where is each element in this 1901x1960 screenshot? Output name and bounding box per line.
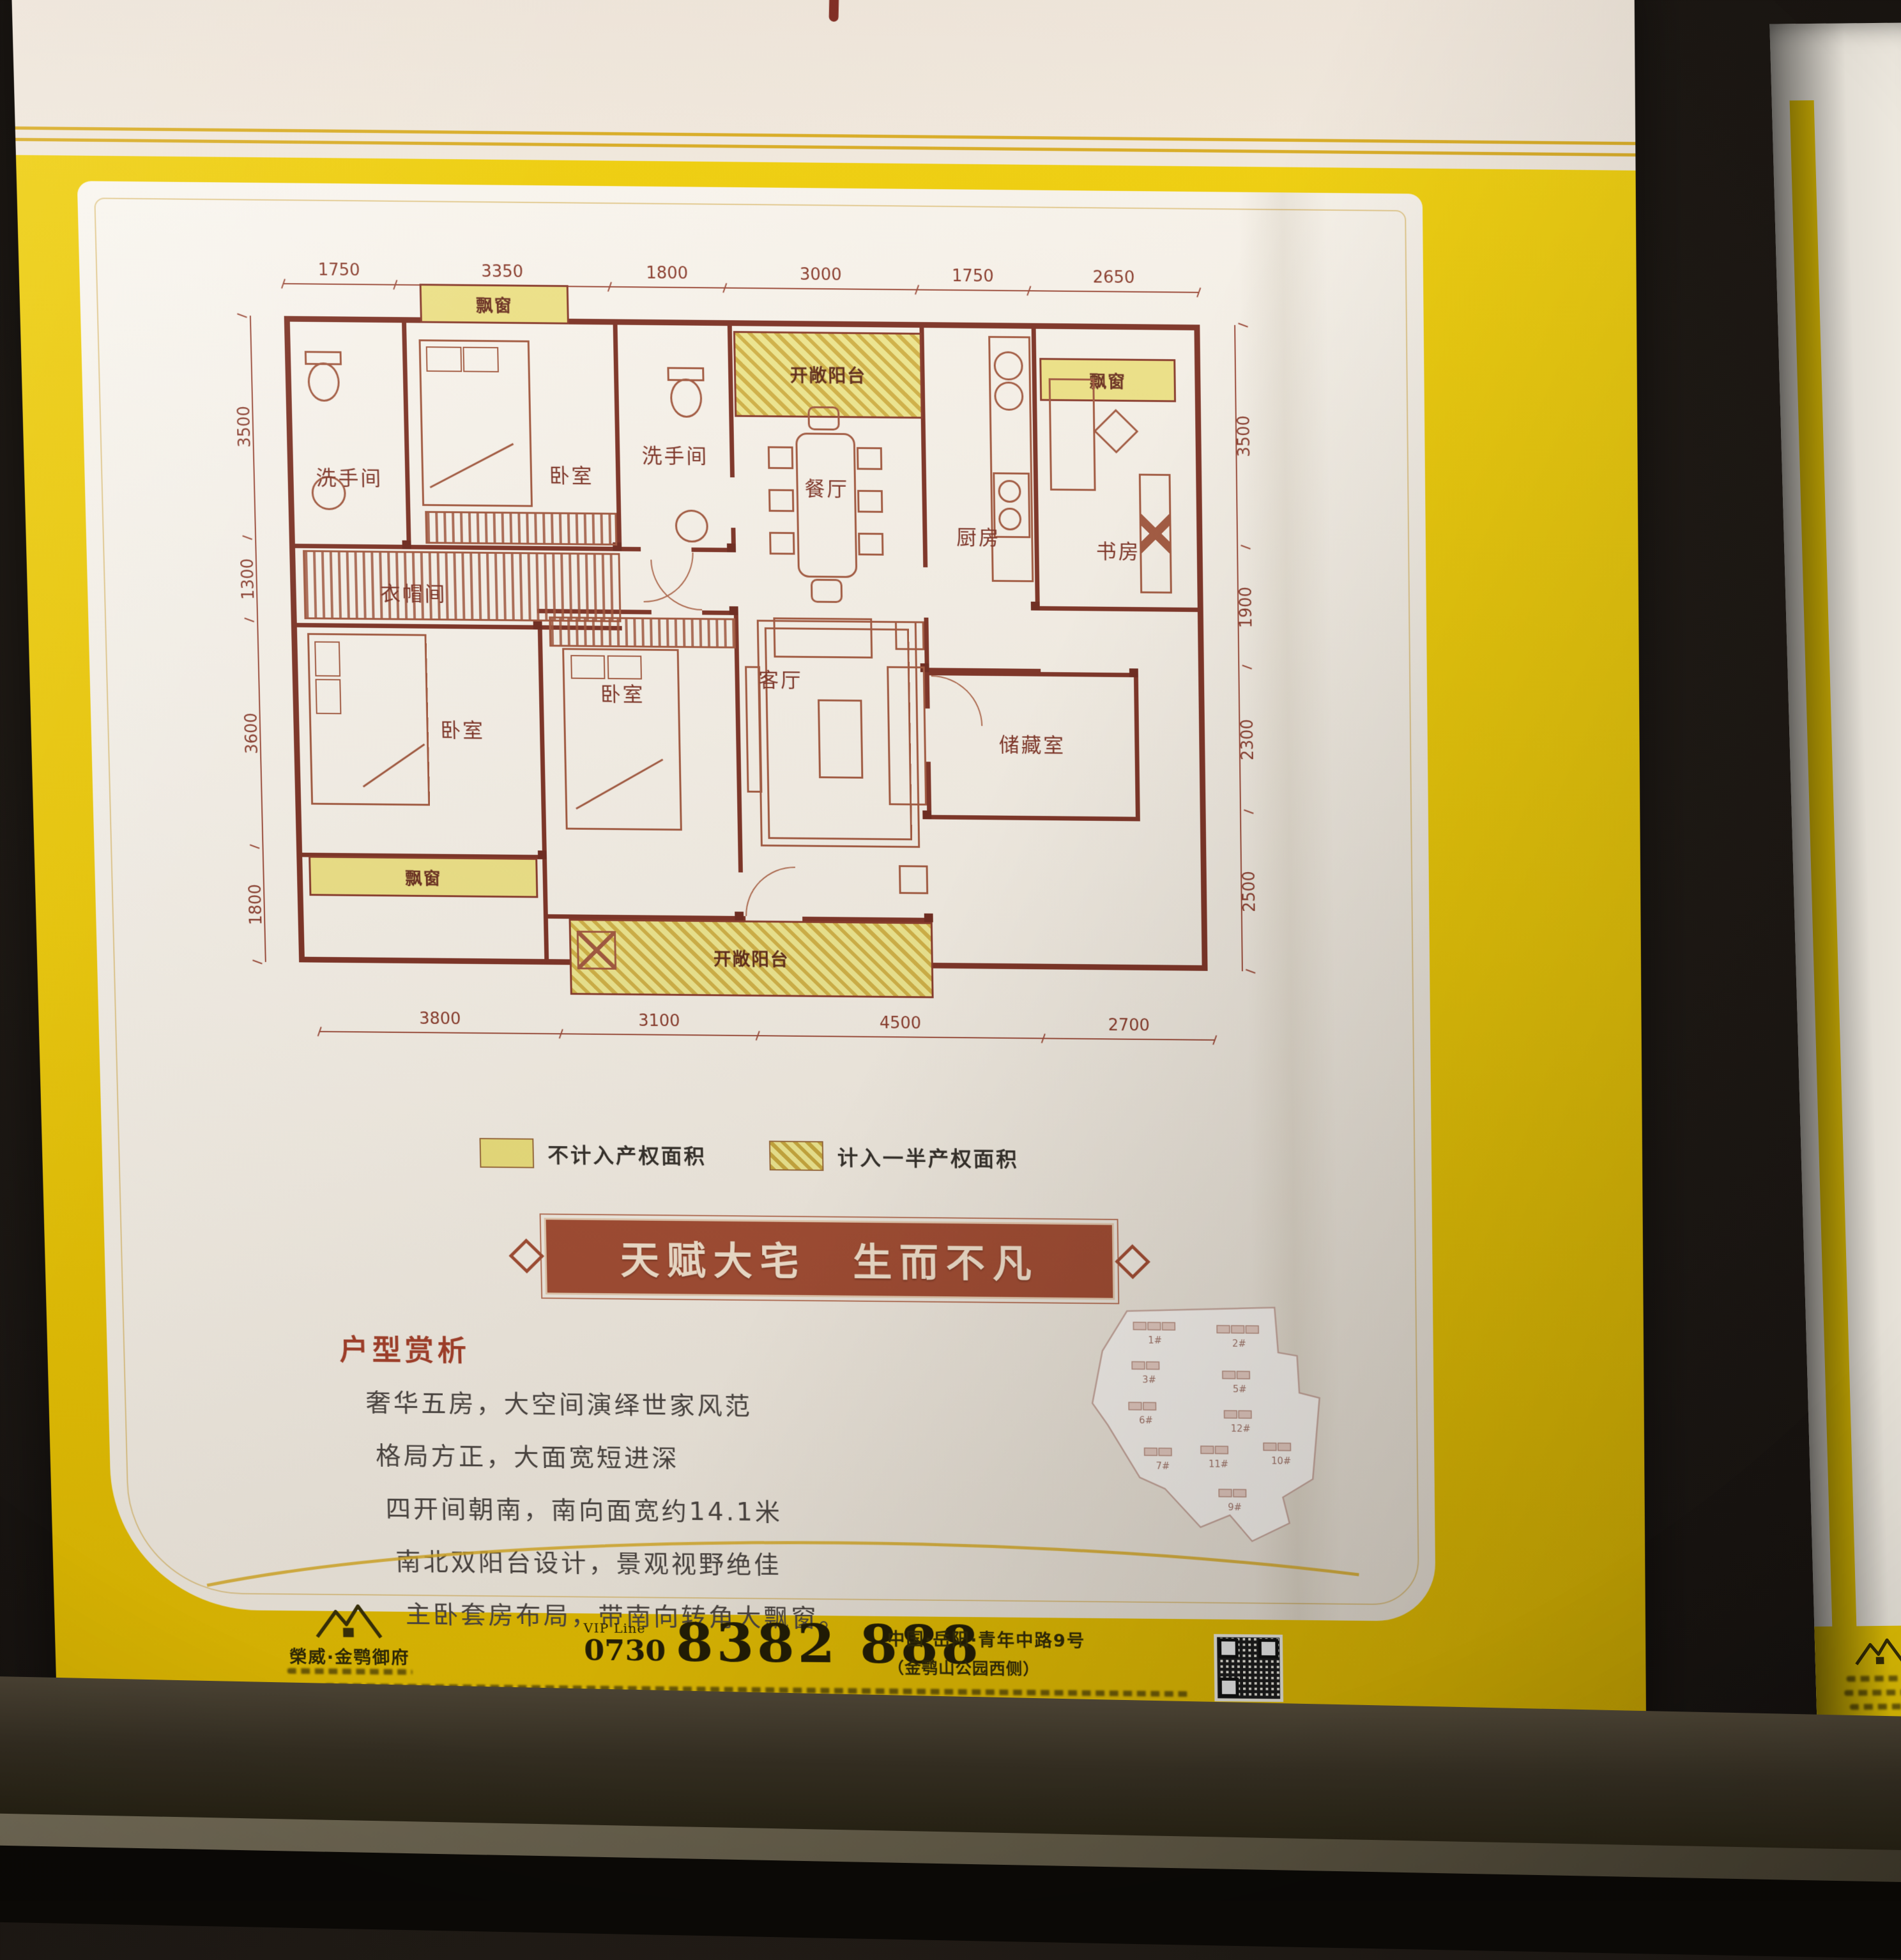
speaker: [899, 865, 928, 894]
mountain-logo-icon: [311, 1602, 387, 1641]
wall: [402, 323, 411, 545]
column: [1031, 602, 1040, 611]
wall: [925, 671, 930, 708]
dim-value: 4500: [758, 1013, 1044, 1034]
legend-not-counted: 不计入产权面积: [479, 1138, 706, 1170]
room-label-bedroom-left: 卧室: [440, 714, 485, 744]
column: [402, 540, 411, 549]
open-balcony-bottom: 开敞阳台: [569, 919, 934, 998]
dim-value: 3600: [242, 712, 262, 754]
building-label: 10#: [1271, 1455, 1291, 1467]
developer-logo-block: 榮威·金鹗御府: [261, 1602, 438, 1669]
analysis-heading: 户型赏析: [339, 1327, 471, 1369]
wall: [734, 611, 743, 873]
analysis-line: 格局方正，大面宽短进深: [375, 1436, 679, 1474]
dim-value: 2650: [1028, 268, 1198, 288]
adjacent-poster-fragment: [1769, 22, 1901, 1751]
dim-value: 1800: [609, 263, 725, 283]
chair: [858, 533, 883, 556]
column: [727, 544, 736, 553]
open-balcony-top: 开敞阳台: [733, 331, 923, 418]
bay-window-top-left: 飘窗: [420, 284, 569, 325]
area-code: 0730: [584, 1635, 666, 1666]
poster-white-panel: 1750 3350 1800 3000 1750 2650 3500 1300 …: [77, 181, 1436, 1621]
wall: [538, 625, 549, 960]
building-label: 11#: [1209, 1459, 1228, 1470]
house-outline: 飘窗 开敞阳台 飘窗 飘窗 开敞阳台: [284, 316, 1208, 971]
dining-table: [795, 433, 857, 578]
building-label: 5#: [1233, 1384, 1247, 1395]
dimension-chain-bottom: 3800 3100 4500 2700: [319, 1007, 1214, 1041]
chair: [857, 447, 882, 470]
legend-half-counted: 计入一半产权面积: [769, 1141, 1019, 1173]
room-label-dining: 餐厅: [804, 473, 849, 502]
bed: [562, 648, 682, 831]
dimension-chain-right: 3500 1900 2300 2500: [1230, 325, 1263, 972]
building-label: 7#: [1156, 1460, 1170, 1472]
dimension-chain-left: 3500 1300 3600 1800: [229, 316, 270, 962]
wall: [927, 815, 1140, 822]
desk: [1049, 378, 1096, 491]
bay-window-label: 飘窗: [1089, 367, 1126, 392]
room-label-bedroom-mid: 卧室: [600, 678, 645, 708]
qr-code: [1214, 1634, 1283, 1702]
washing-machine: [577, 931, 616, 970]
wall: [925, 671, 1138, 677]
wall: [1035, 606, 1198, 612]
dim-value: 2500: [1240, 871, 1259, 912]
poster-top-band: [10, 0, 1636, 171]
analysis-line: 奢华五房，大空间演绎世家风范: [365, 1383, 752, 1423]
wardrobe: [425, 511, 617, 546]
legend-label: 不计入产权面积: [547, 1138, 706, 1170]
column: [729, 606, 738, 615]
chair: [768, 446, 793, 469]
dim-value: 2300: [1238, 719, 1257, 760]
dim-value: 1900: [1237, 586, 1256, 628]
legend-swatch-hatched: [769, 1141, 824, 1171]
bookshelf: [1139, 473, 1172, 593]
room-label-study: 书房: [1096, 535, 1141, 565]
slogan-text: 天赋大宅 生而不凡: [620, 1229, 1039, 1289]
building-label: 9#: [1228, 1502, 1242, 1513]
site-plan-minimap: 1# 2# 3# 5# 6# 12# 7# 11# 10#: [1067, 1292, 1371, 1565]
column: [538, 850, 547, 859]
building-label: 3#: [1142, 1374, 1156, 1386]
burner: [998, 480, 1021, 503]
room-label-bath1: 洗手间: [316, 462, 383, 491]
bed: [307, 633, 430, 806]
calligraphy-stroke: [829, 0, 841, 22]
dim-value: 3350: [395, 261, 609, 282]
chair: [811, 579, 843, 603]
building-label: 2#: [1232, 1338, 1246, 1349]
dim-value: 1800: [246, 884, 266, 925]
wall: [1134, 673, 1140, 821]
brand-name: 榮威·金鹗御府: [262, 1643, 438, 1669]
door-swing: [931, 675, 982, 726]
open-balcony-label: 开敞阳台: [790, 362, 866, 388]
chair: [857, 490, 883, 513]
chair: [1094, 409, 1138, 454]
dim-value: 3500: [234, 406, 254, 448]
building-label: 12#: [1231, 1423, 1251, 1434]
column: [924, 914, 933, 923]
address-block: 中国·岳阳·青年中路9号 （金鹗山公园西侧）: [887, 1626, 1086, 1680]
chair: [769, 532, 795, 555]
building-label: 1#: [1148, 1335, 1162, 1346]
bay-window-label: 飘窗: [405, 864, 442, 889]
toilet: [670, 378, 703, 418]
dim-value: 1750: [917, 266, 1029, 286]
room-label-master-bedroom: 卧室: [549, 460, 593, 489]
column: [533, 621, 542, 630]
open-balcony-label: 开敞阳台: [714, 946, 790, 971]
analysis-line: 四开间朝南，南向面宽约14.1米: [385, 1489, 783, 1528]
kitchen-sink: [994, 381, 1023, 411]
legend-swatch-solid: [479, 1138, 534, 1168]
column: [735, 912, 744, 921]
door-swing: [745, 866, 796, 917]
building-label: 6#: [1139, 1414, 1153, 1426]
poster2-shadow: [1769, 22, 1901, 1751]
real-estate-poster: 1750 3350 1800 3000 1750 2650 3500 1300 …: [10, 0, 1646, 1731]
bed: [419, 339, 533, 507]
dim-value: 2700: [1043, 1015, 1215, 1036]
bay-window-label: 飘窗: [476, 291, 514, 316]
room-label-storage: 储藏室: [999, 729, 1066, 758]
door-swing: [650, 560, 702, 610]
wardrobe: [549, 616, 735, 648]
chair: [768, 489, 794, 512]
toilet: [307, 362, 340, 402]
address-line2: （金鹗山公园西侧）: [887, 1655, 1086, 1680]
room-label-closet: 衣帽间: [380, 578, 447, 607]
analysis-line: 南北双阳台设计，景观视野绝佳: [395, 1542, 782, 1581]
dim-value: 3000: [724, 264, 917, 286]
speaker: [895, 621, 924, 650]
fine-print: [287, 1668, 413, 1674]
room-label-bath2: 洗手间: [641, 440, 708, 470]
floorplan: 1750 3350 1800 3000 1750 2650 3500 1300 …: [213, 258, 1279, 1108]
room-label-kitchen: 厨房: [956, 522, 1001, 551]
column: [1129, 668, 1138, 677]
sofa: [887, 666, 927, 806]
sofa: [773, 617, 873, 658]
burner: [998, 508, 1021, 531]
dim-value: 3100: [561, 1011, 758, 1031]
address-line1: 中国·岳阳·青年中路9号: [887, 1626, 1086, 1652]
dim-value: 3500: [1235, 415, 1255, 457]
dim-value: 3800: [319, 1009, 561, 1030]
slogan-banner: 天赋大宅 生而不凡: [544, 1218, 1115, 1299]
dim-value: 1750: [283, 260, 395, 280]
chair: [807, 406, 839, 431]
bay-window-bottom-left: 飘窗: [309, 856, 538, 898]
column: [922, 811, 931, 820]
coffee-table: [818, 700, 863, 779]
room-label-living: 客厅: [758, 664, 803, 694]
legend-label: 计入一半产权面积: [837, 1142, 1019, 1173]
wall: [924, 618, 929, 668]
kitchen-sink: [993, 351, 1023, 381]
sink: [675, 510, 709, 543]
closet-wardrobe: [303, 550, 621, 622]
dim-value: 1300: [238, 558, 258, 599]
